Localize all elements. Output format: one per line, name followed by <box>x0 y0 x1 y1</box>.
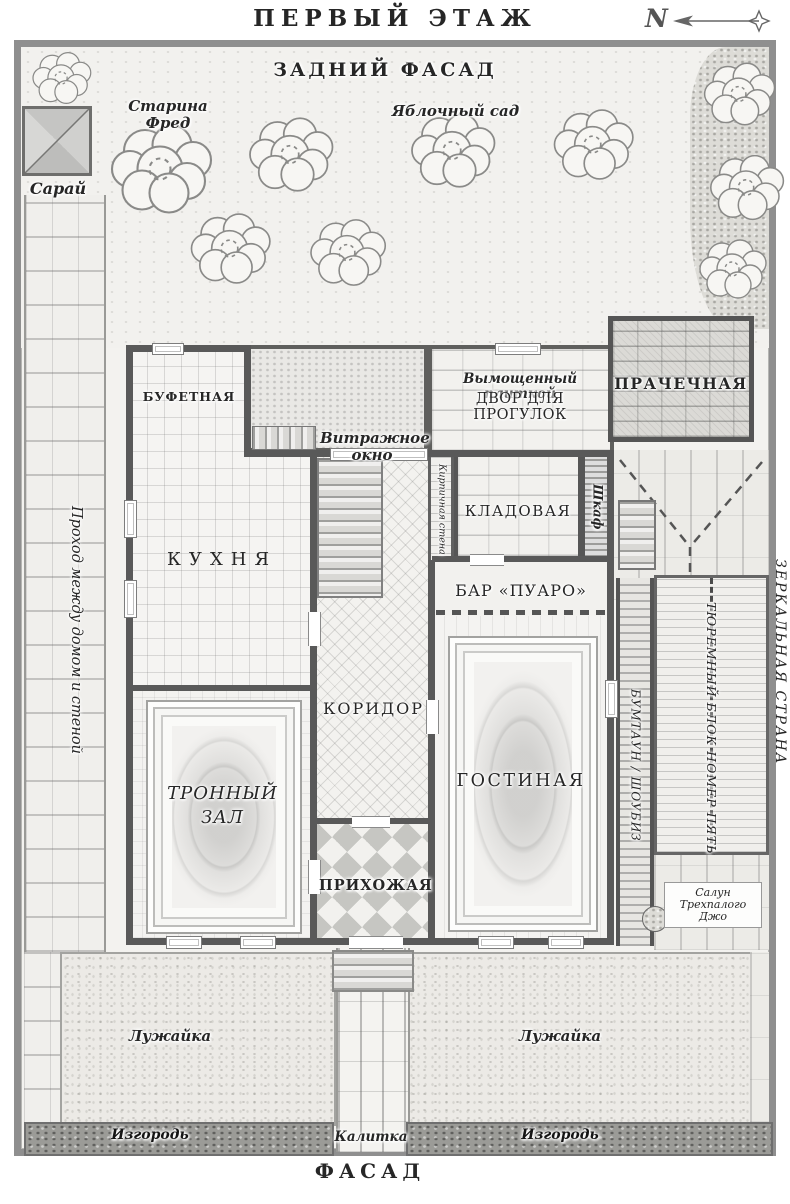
tree-orchard-3 <box>545 104 640 185</box>
saloon-label: Салун Трехпалого Джо <box>664 882 762 928</box>
tree-edge-1 <box>696 58 781 130</box>
window-front-4 <box>548 936 584 949</box>
window-back-courtyard <box>495 343 541 355</box>
tree-orchard-2 <box>402 108 502 193</box>
compass: N <box>645 4 775 38</box>
terrace-steps <box>252 426 316 450</box>
tree-orchard-1 <box>240 112 340 197</box>
house-wall-left <box>126 345 133 945</box>
kitchen-label: КУХНЯ <box>138 550 306 570</box>
bar-counter-dashes <box>436 610 608 615</box>
bar-label: БАР «ПУАРО» <box>432 582 610 600</box>
compass-arrow-icon <box>671 8 775 34</box>
window-left-1 <box>124 500 137 538</box>
tree-edge-2 <box>702 150 790 225</box>
cupboard-label: Шкаф <box>583 470 609 544</box>
door-hallway <box>352 816 390 828</box>
storeroom-label: КЛАДОВАЯ <box>454 503 582 520</box>
courtyard-label: ДВОР ДЛЯ ПРОГУЛОК <box>430 391 610 423</box>
hedge-left-label: Изгородь <box>90 1128 210 1144</box>
tree-old-fred <box>100 118 220 220</box>
lawn-left-label: Лужайка <box>100 1028 240 1045</box>
lawn-right-label: Лужайка <box>490 1028 630 1045</box>
laundry-label: ПРАЧЕЧНАЯ <box>611 375 751 392</box>
hallway-label: ПРИХОЖАЯ <box>319 878 430 894</box>
tree-orchard-4 <box>182 208 277 289</box>
mirror-land-label: ЗЕРКАЛЬНАЯ СТРАНА <box>768 545 790 780</box>
front-door <box>349 936 403 949</box>
window-left-2 <box>124 580 137 618</box>
shed-roof <box>22 106 92 176</box>
tree-corner <box>26 48 96 108</box>
corridor-label: КОРИДОР <box>317 700 430 718</box>
floor-plan-page: ПЕРВЫЙ ЭТАЖ N <box>0 0 790 1204</box>
window-pantry-top <box>152 343 184 355</box>
front-steps <box>332 950 414 992</box>
hedge-right-label: Изгородь <box>480 1128 640 1144</box>
storeroom-bar-wall <box>432 556 610 562</box>
old-fred-label: Старина Фред <box>118 98 218 132</box>
shed-label: Сарай <box>18 180 98 198</box>
pantry-label: БУФЕТНАЯ <box>134 390 244 404</box>
left-bottom-path <box>24 952 60 1124</box>
throne-room-label: ТРОННЫЙ ЗАЛ <box>150 782 295 831</box>
window-right-1 <box>605 680 618 718</box>
living-room-label: ГОСТИНАЯ <box>440 772 602 792</box>
compass-north-label: N <box>645 4 668 33</box>
window-front-1 <box>166 936 202 949</box>
kitchen-room <box>130 452 314 690</box>
front-facade-label: ФАСАД <box>220 1160 520 1182</box>
stained-window-label: Витражное окно <box>320 430 424 464</box>
main-staircase <box>317 458 383 598</box>
yard-steps <box>618 500 656 570</box>
gate-label: Калитка <box>330 1130 412 1145</box>
door-kitchen-corridor <box>308 612 321 646</box>
prison-block-label: ТЮРЕМНЫЙ БЛОК НОМЕР ПЯТЬ <box>696 588 726 868</box>
tree-edge-3 <box>692 235 772 303</box>
brick-wall-label: Кирпичная стена <box>429 456 453 562</box>
orchard-label: Яблочный сад <box>378 103 533 120</box>
boomtown-label: БУМТАУН / ШОУБИЗ <box>620 600 650 930</box>
pantry-wall-right <box>244 345 251 457</box>
window-front-2 <box>240 936 276 949</box>
kitchen-throne-wall <box>130 685 314 691</box>
door-storeroom-bar <box>470 554 504 566</box>
tree-orchard-5 <box>302 214 392 291</box>
back-facade-label: ЗАДНИЙ ФАСАД <box>200 60 570 81</box>
right-bottom-path <box>750 952 769 1122</box>
pantry-wall-top <box>126 345 251 352</box>
shed-roof-ridges <box>25 109 89 173</box>
side-passage-label: Проход между домом и стеной <box>62 470 90 790</box>
window-front-3 <box>478 936 514 949</box>
